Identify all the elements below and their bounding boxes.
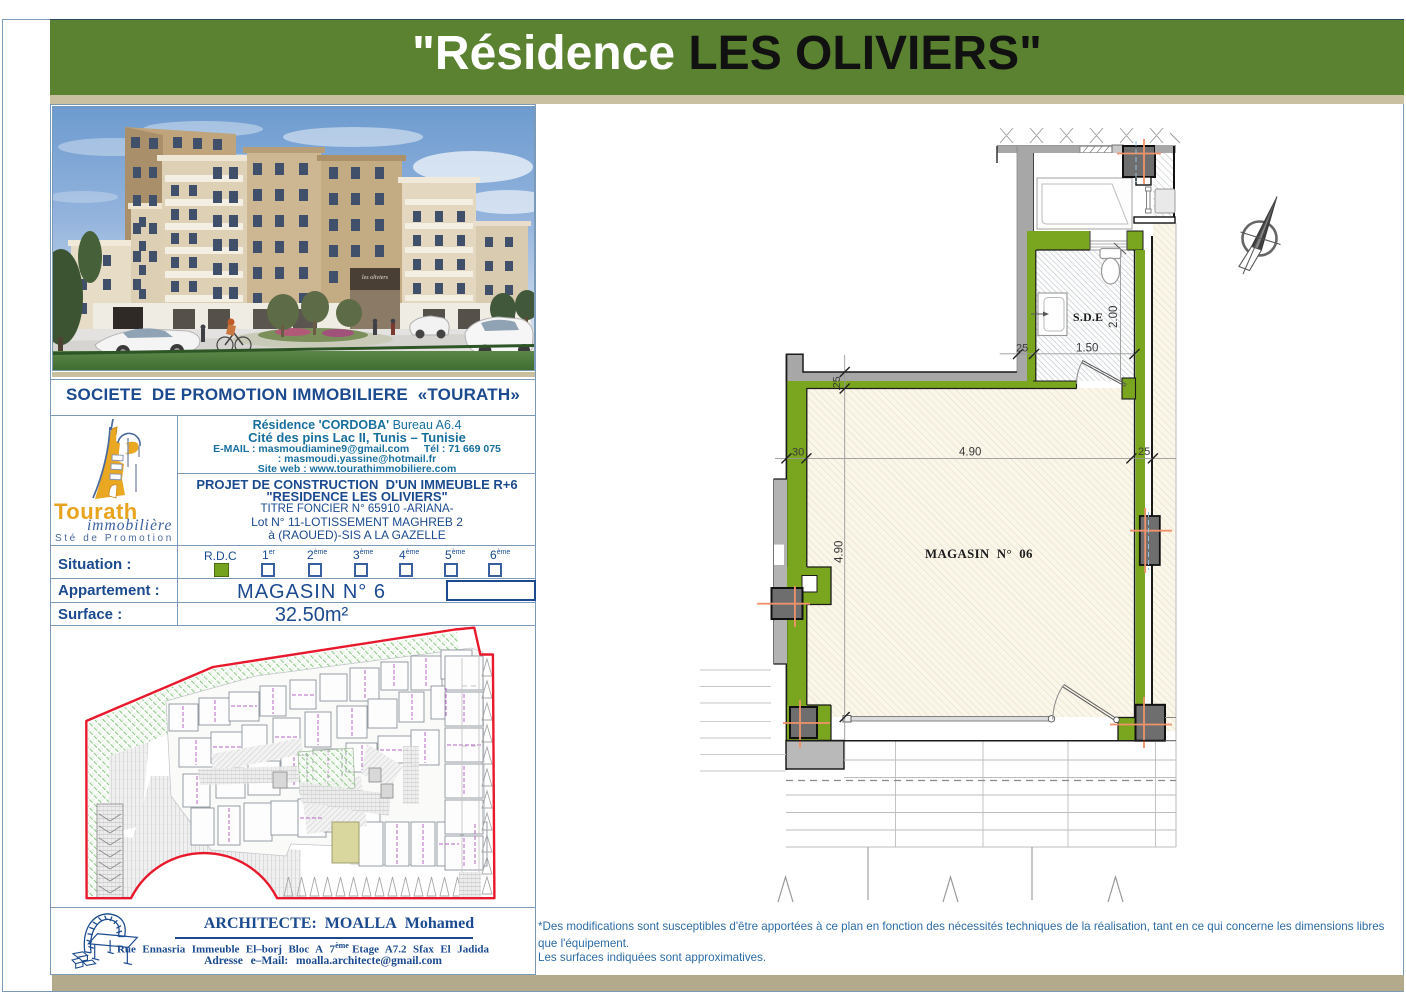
svg-text:25: 25 <box>1138 446 1150 458</box>
svg-text:2.00: 2.00 <box>1108 306 1120 328</box>
svg-text:S.D.E: S.D.E <box>1073 310 1103 324</box>
svg-text:.25: .25 <box>831 376 843 391</box>
svg-text:4.90: 4.90 <box>959 447 981 459</box>
svg-text:4.90: 4.90 <box>834 541 846 563</box>
svg-text:1.50: 1.50 <box>1076 343 1098 355</box>
svg-text:25: 25 <box>1016 343 1028 355</box>
svg-text:.30: .30 <box>789 447 804 459</box>
svg-text:MAGASIN N° 06: MAGASIN N° 06 <box>925 547 1033 561</box>
